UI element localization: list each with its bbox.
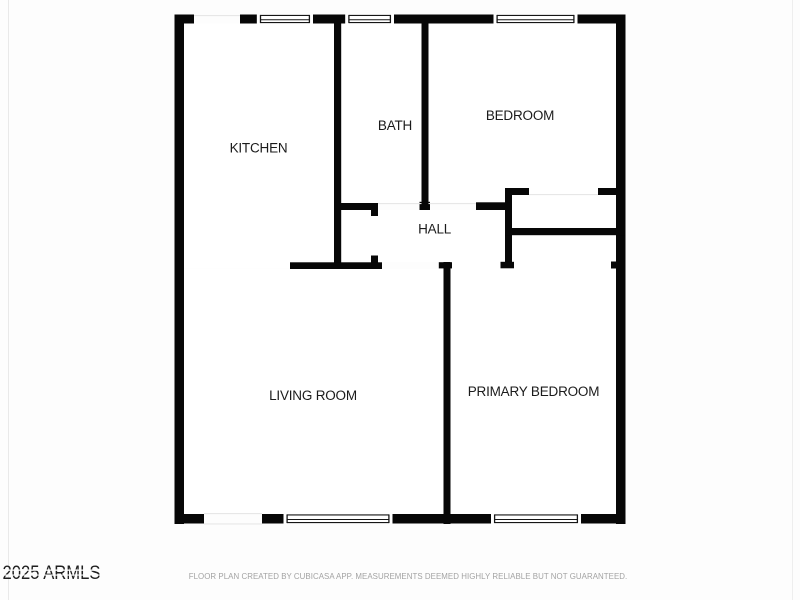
svg-text:PRIMARY BEDROOM: PRIMARY BEDROOM [468,384,600,399]
svg-text:2025 ARMLS: 2025 ARMLS [3,563,101,584]
svg-text:KITCHEN: KITCHEN [230,140,288,155]
svg-text:BATH: BATH [378,118,412,133]
svg-text:HALL: HALL [418,222,452,237]
svg-text:FLOOR PLAN CREATED BY CUBICASA: FLOOR PLAN CREATED BY CUBICASA APP. MEAS… [189,572,628,581]
svg-text:LIVING ROOM: LIVING ROOM [269,388,357,403]
svg-text:BEDROOM: BEDROOM [486,108,554,123]
